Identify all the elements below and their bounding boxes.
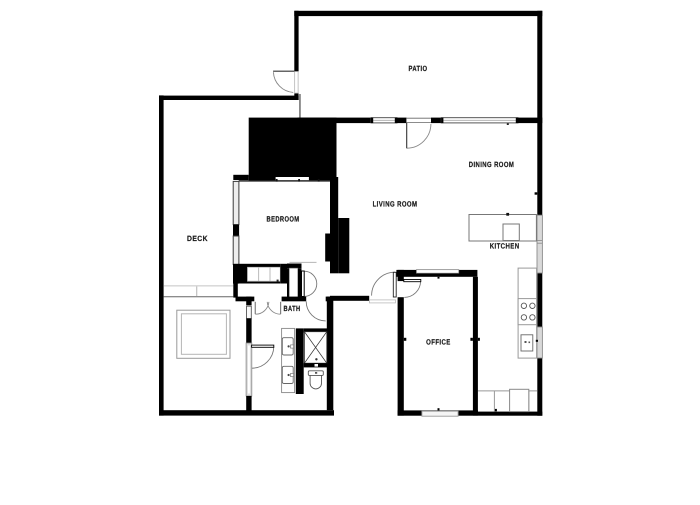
svg-text:OFFICE: OFFICE [426, 338, 451, 347]
svg-text:KITCHEN: KITCHEN [490, 242, 520, 251]
svg-text:DECK: DECK [187, 234, 208, 243]
svg-text:PATIO: PATIO [409, 64, 428, 73]
svg-text:LIVING ROOM: LIVING ROOM [373, 200, 418, 209]
svg-text:BEDROOM: BEDROOM [267, 215, 300, 224]
svg-text:BATH: BATH [284, 304, 301, 313]
svg-text:DINING ROOM: DINING ROOM [469, 160, 515, 169]
